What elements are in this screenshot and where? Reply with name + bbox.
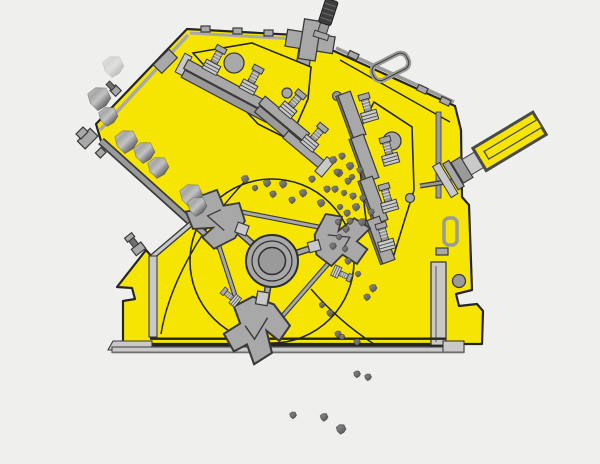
top-edge-tab [201, 26, 210, 32]
right-foot-plate [443, 341, 464, 352]
wall-edge-strip [149, 256, 157, 337]
apron1-pivot-hole [224, 53, 244, 73]
rotor-hub [246, 235, 298, 287]
top-edge-tab [264, 30, 273, 36]
apron2-hole [406, 194, 415, 203]
access-door [431, 262, 446, 346]
wall-hole [453, 275, 466, 288]
impact-crusher-diagram [0, 0, 600, 464]
apron1-hole [282, 88, 292, 98]
top-edge-tab [233, 28, 242, 34]
base-frame [108, 338, 464, 354]
wall-clip [436, 248, 448, 255]
